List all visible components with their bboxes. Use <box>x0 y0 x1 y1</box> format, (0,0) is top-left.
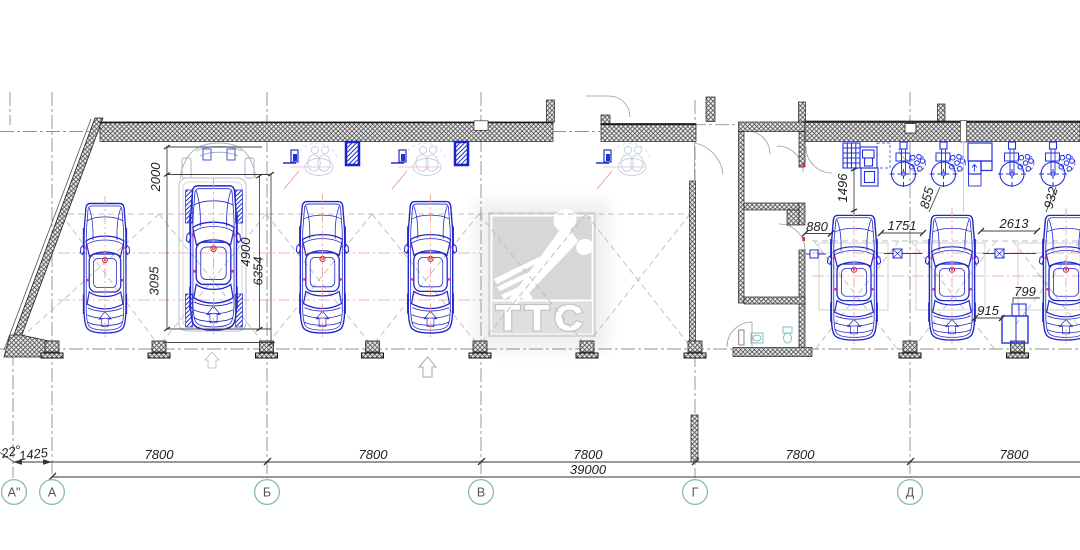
svg-text:2000: 2000 <box>148 162 163 193</box>
svg-text:7800: 7800 <box>574 447 604 462</box>
svg-text:7800: 7800 <box>359 447 389 462</box>
svg-text:915: 915 <box>977 303 999 318</box>
svg-text:А: А <box>48 486 57 500</box>
svg-text:Д: Д <box>906 486 915 500</box>
svg-text:Б: Б <box>263 486 271 500</box>
svg-text:6354: 6354 <box>251 257 266 286</box>
svg-text:7800: 7800 <box>1000 447 1030 462</box>
svg-text:39000: 39000 <box>570 462 607 477</box>
svg-text:1496: 1496 <box>835 173 850 203</box>
svg-text:1751: 1751 <box>888 218 917 233</box>
svg-text:799: 799 <box>1014 284 1036 299</box>
svg-text:880: 880 <box>806 219 828 234</box>
svg-text:В: В <box>477 486 485 500</box>
svg-text:7800: 7800 <box>786 447 816 462</box>
svg-text:2613: 2613 <box>999 216 1030 231</box>
svg-text:Г: Г <box>692 486 699 500</box>
svg-text:7800: 7800 <box>145 447 175 462</box>
svg-text:3095: 3095 <box>147 266 162 296</box>
svg-text:А": А" <box>8 486 21 500</box>
